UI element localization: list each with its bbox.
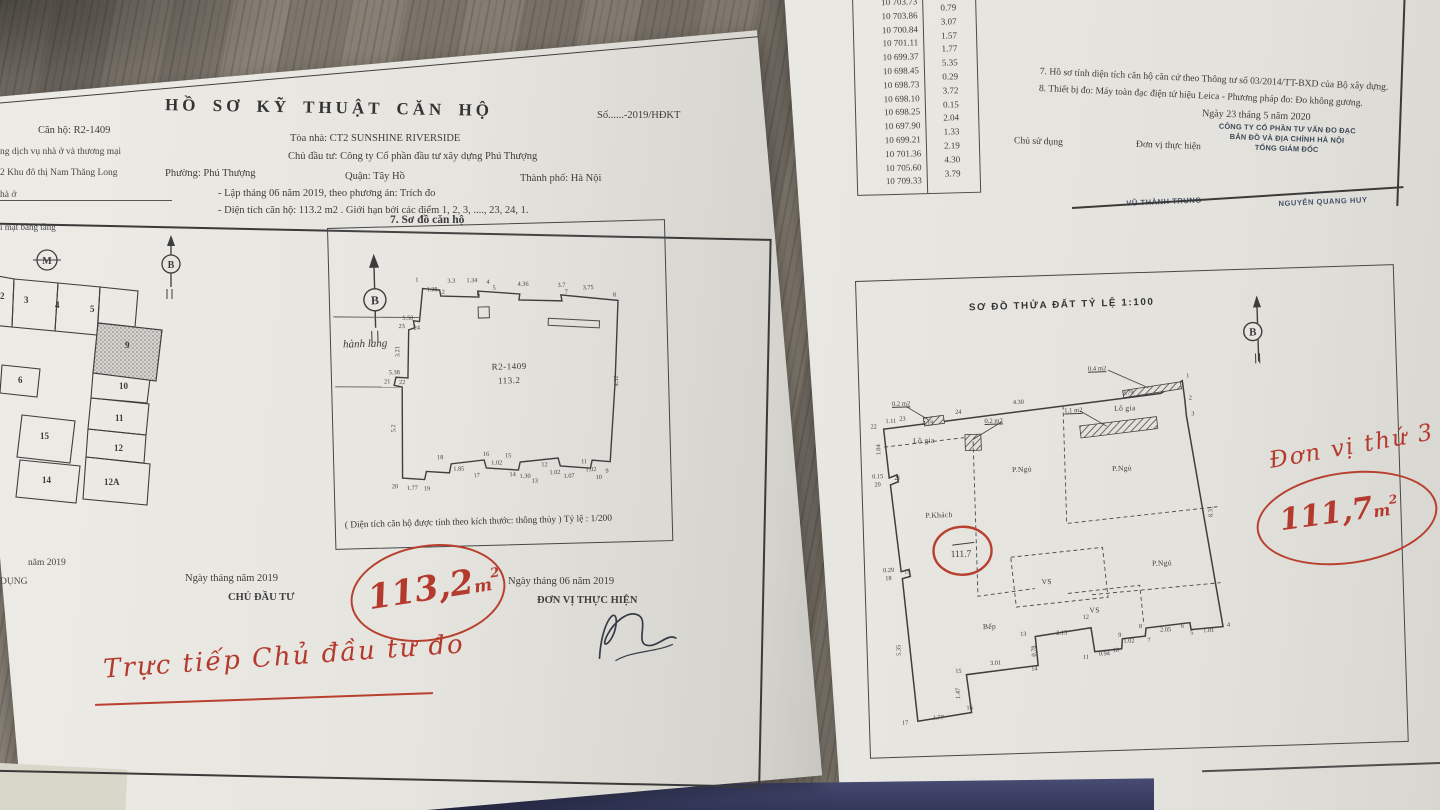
unit-number: 2 [0, 291, 5, 301]
handwritten-signature [580, 590, 697, 673]
plot-label: 15 [955, 668, 962, 675]
plot-label: 1.47 [955, 688, 962, 699]
partial-role-text: DỤNG [0, 577, 27, 587]
city-line: Thành phố: Hà Nội [520, 173, 601, 184]
plot-label: 2.05 [1160, 626, 1171, 633]
plot-label: 1.11 [885, 418, 896, 425]
plot-label: 3.01 [990, 660, 1001, 667]
coord-distance-value: 4.30 [927, 153, 977, 168]
dimension-label: 1.07 [563, 473, 574, 480]
plot-label: 1.1 m2 [1064, 407, 1083, 415]
unit-number: 5 [90, 304, 95, 314]
coord-x-value: 10 709.33 [858, 174, 927, 190]
unit-number: 12A [104, 477, 120, 487]
coord-distance-value: 5.35 [925, 56, 975, 71]
plot-label: 21 [894, 475, 901, 482]
dimension-label: 3.21 [394, 346, 401, 357]
plot-label: 0.2 m2 [892, 400, 911, 408]
unit-number: 12 [114, 443, 123, 453]
dimension-label: 16 [483, 451, 489, 458]
plot-label: 14 [1031, 665, 1038, 672]
area-description-line: - Diện tích căn hộ: 113.2 m2 . Giới hạn … [218, 205, 529, 216]
plot-label: 1.04 [875, 444, 882, 455]
coord-x-value: 10 703.86 [853, 9, 922, 25]
ward-line: Phường: Phú Thượng [165, 168, 256, 179]
survey-date-line: - Lập tháng 06 năm 2019, theo phương án:… [218, 188, 435, 199]
district-line: Quận: Tây Hồ [345, 171, 405, 182]
plot-label: 12 [1083, 614, 1090, 621]
unit-number: 15 [40, 431, 49, 441]
unit-number: 11 [115, 413, 124, 423]
coord-distance-value: 0.79 [923, 1, 973, 16]
coord-distance-value: 2.19 [927, 139, 977, 154]
executor-date-line: Ngày tháng 06 năm 2019 [508, 576, 614, 587]
dimension-label: 5.50 [402, 315, 413, 322]
apartment-dimension-labels: 11.2823.31.344564.363.773.7585.5023243.2… [328, 220, 671, 519]
coord-distance-value: 0.15 [926, 97, 976, 112]
plot-label: Lô gia [913, 436, 935, 446]
dimension-label: 1 [415, 277, 418, 284]
investor-role-label: CHỦ ĐẦU TƯ [228, 592, 295, 603]
dimension-label: 11 [581, 458, 587, 465]
dimension-label: 22 [399, 379, 405, 386]
plot-label: 6 [1181, 623, 1184, 630]
unit-number: 9 [125, 340, 130, 350]
document-number: Số......-2019/HĐKT [597, 110, 680, 121]
plot-label: 0.4 m2 [1088, 365, 1107, 373]
coord-distance-value: 3.72 [925, 84, 975, 99]
plot-label: 16 [966, 705, 973, 712]
dimension-label: 4.32 [613, 375, 620, 386]
plot-label: 8 [1139, 623, 1142, 630]
dimension-label: 2 [442, 289, 445, 296]
dimension-label: 5 [493, 285, 496, 292]
unit-number: 4 [55, 300, 60, 310]
coord-distance-value: 3.07 [924, 15, 974, 30]
dimension-label: 1.85 [453, 465, 464, 472]
dimension-label: 21 [384, 378, 390, 385]
apartment-diagram-box: B hành lang R2-1409 113.2 11.2823.31.344… [327, 219, 673, 550]
dimension-label: 9 [605, 468, 608, 475]
dimension-label: 18 [437, 454, 443, 461]
plot-label: 1.01 [1203, 627, 1214, 634]
red-area-left: 113,2m2 [365, 558, 503, 618]
plot-label: 11 [1083, 654, 1089, 661]
dimension-label: 3.75 [583, 284, 594, 291]
plot-label: 2.15 [1056, 630, 1067, 637]
dimension-label: 1.28 [427, 286, 438, 293]
plot-label: P.Ngủ [1012, 465, 1032, 475]
plot-label: P.Ngủ [1152, 558, 1172, 568]
plot-label: 0.78 [1031, 645, 1038, 656]
red-area-value: 113,2 [365, 562, 476, 618]
unit-number: 3 [24, 295, 29, 305]
unit-number: 10 [119, 381, 128, 391]
owner-role-label: Chủ sử dụng [1014, 135, 1063, 148]
plot-label: 0.15 [872, 473, 883, 480]
apartment-id-line: Căn hộ: R2-1409 [38, 125, 110, 136]
coord-distance-value: 2.04 [926, 111, 976, 126]
plot-label: 24 [955, 409, 962, 416]
dimension-label: 23 [399, 323, 405, 330]
dimension-label: 7 [565, 289, 568, 296]
dimension-label: 1.02 [585, 466, 596, 473]
investor-line: Chủ đầu tư: Công ty Cổ phần đầu tư xây d… [288, 151, 537, 162]
plot-label: 10 [1113, 647, 1120, 654]
coord-distance-value: 1.77 [924, 42, 974, 57]
dimension-label: 20 [392, 483, 398, 490]
cut-text-2: 2 Khu đô thị Nam Thăng Long [0, 168, 118, 178]
dimension-label: 14 [509, 471, 515, 478]
coord-distance-value: 1.33 [926, 125, 976, 140]
dimension-label: 1.30 [519, 473, 530, 480]
plot-label: 3 [1191, 410, 1194, 417]
blank-underline [0, 200, 172, 201]
dimension-label: 13 [532, 478, 538, 485]
coord-x-value: 10 701.36 [857, 147, 926, 163]
plot-label: 17 [902, 720, 909, 727]
plot-title: SƠ ĐỒ THỬA ĐẤT TỶ LỆ 1:100 [969, 297, 1155, 314]
dimension-label: 15 [505, 452, 511, 459]
plot-label: 1.77 [933, 714, 944, 721]
plot-label: 4 [1227, 621, 1230, 628]
dimension-label: 5.2 [390, 424, 397, 432]
dimension-label: 1.34 [466, 277, 477, 284]
dimension-label: 5.38 [389, 369, 400, 376]
plot-label: 4.30 [1013, 399, 1024, 406]
unit-number: 14 [42, 475, 51, 485]
plot-label: 0.2 m2 [984, 417, 1003, 425]
dimension-label: 4 [486, 279, 489, 286]
plot-label: 3.19 [922, 420, 933, 427]
plot-label: 5 [1190, 630, 1193, 637]
dimension-label: 6 [477, 291, 480, 298]
dimension-label: 1.02 [549, 469, 560, 476]
dimension-label: 1.77 [407, 485, 418, 492]
dimension-label: 1.02 [491, 459, 502, 466]
plot-label: Bếp [983, 622, 996, 631]
plot-label: 9 [1118, 632, 1121, 639]
partial-year-text: năm 2019 [28, 558, 66, 568]
plot-label: 18 [885, 575, 892, 582]
plot-label: 22 [870, 423, 877, 430]
coord-x-value: 10 699.21 [857, 133, 926, 149]
dimension-label: 19 [424, 485, 430, 492]
plot-label: 2 [1189, 394, 1192, 401]
photo-of-documents: 10 703.7310 703.8610 700.8410 701.1110 6… [0, 0, 1440, 810]
plot-label: 3.79 [1123, 389, 1134, 396]
plot-label: 19 [904, 568, 911, 575]
plot-labels: 221.11233.19244.303.791230.2 m20.2 m21.1… [864, 337, 1276, 744]
coord-x-value: 10 698.73 [855, 78, 924, 94]
dimension-label: 24 [414, 325, 420, 332]
plot-label: 0.94 [1099, 650, 1110, 657]
coordinate-column-distance: 0.793.071.571.775.350.293.720.152.041.33… [923, 1, 978, 182]
dimension-label: 8 [613, 291, 616, 298]
plot-label: 23 [899, 415, 906, 422]
red-area-value: 111,7 [1277, 490, 1375, 538]
coordinate-table: 10 703.7310 703.8610 700.8410 701.1110 6… [852, 0, 981, 196]
investor-date-line: Ngày tháng năm 2019 [185, 573, 278, 584]
building-line: Tòa nhà: CT2 SUNSHINE RIVERSIDE [290, 133, 460, 144]
mini-plan-unit-numbers: 234596101115121412A [0, 235, 215, 510]
dimension-label: 12 [541, 461, 547, 468]
dimension-label: 10 [596, 474, 602, 481]
red-area-right: 111,7m2 [1277, 487, 1400, 538]
plot-label: VS [1089, 605, 1100, 614]
plot-label: 1 [1186, 373, 1189, 380]
plot-label: 20 [874, 481, 881, 488]
cut-text-3: hà ở [0, 190, 16, 200]
red-area-sup: 2 [1388, 492, 1398, 507]
coord-distance-value: 0.29 [925, 70, 975, 85]
plot-label: 0.29 [883, 567, 894, 574]
coord-distance-value: 1.57 [924, 28, 974, 43]
plot-label: 8.31 [1207, 506, 1214, 517]
coord-distance-value: 3.79 [928, 166, 978, 181]
red-area-sup: 2 [489, 565, 500, 581]
plot-label: 5.35 [895, 645, 902, 656]
plot-label: 7 [1147, 637, 1150, 644]
unit-number: 6 [18, 375, 23, 385]
plot-label: 1.02 [1123, 637, 1134, 644]
cut-text-1: ng dịch vụ nhà ở và thương mại [0, 147, 121, 157]
plot-label: P.Khách [925, 510, 952, 520]
dimension-label: 3.3 [447, 278, 455, 285]
plot-label: Lô gia [1114, 403, 1136, 413]
dimension-label: 4.36 [517, 281, 528, 288]
plot-label: 13 [1020, 631, 1027, 638]
coordinate-column-x: 10 703.7310 703.8610 700.8410 701.1110 6… [853, 0, 928, 195]
plot-label: P.Ngủ [1112, 463, 1132, 473]
plot-label: VS [1041, 577, 1052, 586]
dimension-label: 17 [473, 472, 479, 479]
